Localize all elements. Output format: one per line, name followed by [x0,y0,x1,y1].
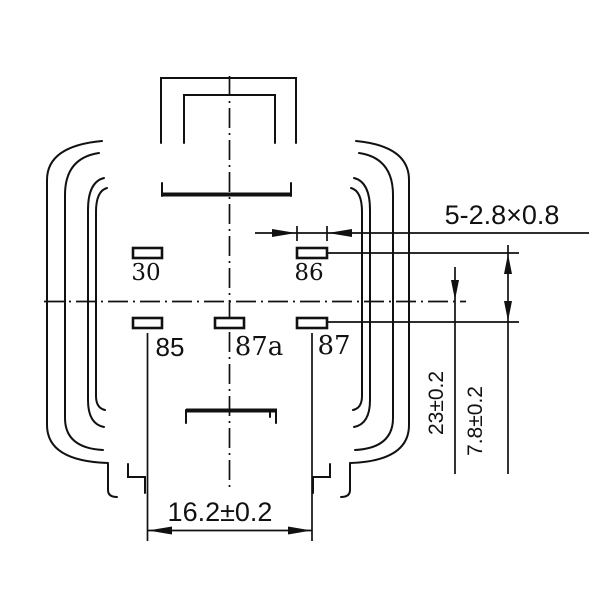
bottom-dim-arrow-left [148,527,172,535]
pin-30-pad [133,248,162,258]
row-spacing-arrow-up [504,254,512,274]
centerlines [44,76,466,492]
pin-87a-pad [215,318,244,328]
terminal-size-arrow-left [272,229,296,237]
terminal-size-arrow-right [328,229,352,237]
bottom-dim-arrow-right [288,527,312,535]
drawing-svg: 30 86 85 87a 87 5-2.8×0.8 16.2±0.2 23±0.… [0,0,600,600]
terminal-length-arrow-down [451,280,459,300]
pin-30-label: 30 [131,260,160,286]
left-foot-hook [108,464,117,497]
body-outline-right-inner-b [351,188,362,410]
terminal-size-dim-text: 5-2.8×0.8 [445,200,560,230]
left-foot-step [128,464,145,493]
pin-86-label: 86 [294,260,323,286]
pin-86-pad [297,248,327,258]
top-tab [161,78,296,143]
pin-87-pad [297,318,327,328]
right-foot-step [313,464,330,493]
terminal-length-dim-text: 23±0.2 [425,371,448,435]
row-leader-lines [327,253,519,322]
relay-dimension-drawing: 30 86 85 87a 87 5-2.8×0.8 16.2±0.2 23±0.… [0,0,600,600]
pin-87-label: 87 [317,331,350,361]
lower-flange-bar [186,410,277,423]
row-spacing-dim-text: 7.8±0.2 [464,386,487,456]
row-spacing-arrow-down [504,301,512,321]
right-foot-hook [341,464,350,497]
pin-85-pad [133,318,162,328]
upper-flange-bar [162,183,291,196]
pin-87a-label: 87a [235,332,284,362]
bottom-dim-text: 16.2±0.2 [168,497,273,527]
labels: 30 86 85 87a 87 5-2.8×0.8 16.2±0.2 23±0.… [131,200,559,527]
body-outline-left-inner-b [96,188,107,410]
pin-85-label: 85 [156,332,185,362]
